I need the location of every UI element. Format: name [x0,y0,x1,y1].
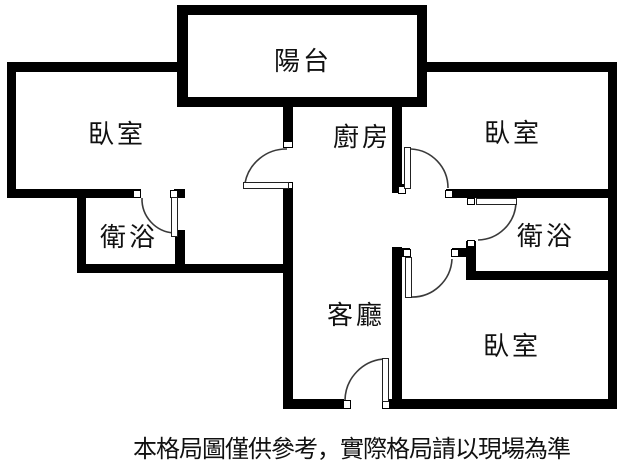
room-label-kitchen: 廚房 [314,117,410,154]
door-swing-arc-entry [345,359,385,400]
door-jamb [467,240,475,247]
room-label-bedroom-top-right: 臥室 [465,113,561,150]
floor-plan: 陽台 臥室 廚房 臥室 衛浴 衛浴 客廳 臥室 本格局圖僅供參考，實際格局請以現… [0,0,640,466]
door-jamb [403,249,411,257]
door-jamb [283,141,293,148]
door-swing-arc-bedroom-tr [411,149,448,188]
door-jamb [467,198,475,205]
door-jamb [133,190,141,198]
door-jamb [451,249,459,257]
door-jamb [445,190,453,198]
door-leaf-kitchen [243,182,289,189]
room-label-living-room: 客廳 [308,295,404,332]
room-label-bathroom-right: 衛浴 [498,216,594,253]
door-swing-arc-bedroom-br [411,259,452,297]
door-leaf-entry [382,358,389,402]
room-label-bedroom-bottom-right: 臥室 [464,326,560,363]
door-jamb [343,400,351,409]
room-label-bathroom-left: 衛浴 [81,217,177,254]
door-leaf-bedroom-br [405,257,412,298]
room-label-bedroom-top-left: 臥室 [69,114,165,151]
door-swing-arc-kitchen [245,149,287,183]
room-label-balcony: 陽台 [255,41,351,78]
disclaimer-text: 本格局圖僅供參考，實際格局請以現場為準 [133,429,570,464]
door-leaf-bath-right [476,198,517,205]
